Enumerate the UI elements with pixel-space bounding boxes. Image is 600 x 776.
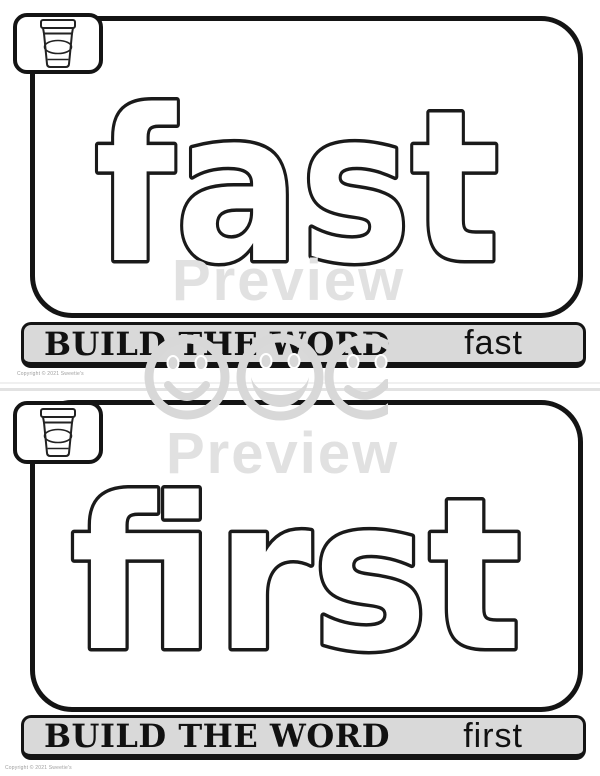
build-the-word-bar: BUILD THE WORD first xyxy=(21,715,586,760)
playdough-cup-badge xyxy=(13,13,103,74)
page-divider xyxy=(0,382,600,384)
build-the-word-label: BUILD THE WORD xyxy=(44,325,390,363)
playdough-cup-badge xyxy=(13,401,103,464)
target-word-label: first xyxy=(463,717,523,756)
build-the-word-bar: BUILD THE WORD fast xyxy=(21,322,586,368)
word-card-first xyxy=(30,400,583,712)
page-divider xyxy=(0,388,600,391)
playdough-cup-icon xyxy=(17,405,99,460)
copyright-text: Copyright © 2021 Sweetie's xyxy=(17,371,84,377)
target-word-label: fast xyxy=(464,324,523,363)
copyright-text: Copyright © 2021 Sweetie's xyxy=(5,765,72,771)
build-the-word-label: BUILD THE WORD xyxy=(44,717,390,755)
playdough-cup-icon xyxy=(17,17,99,70)
word-card-fast xyxy=(30,16,583,318)
